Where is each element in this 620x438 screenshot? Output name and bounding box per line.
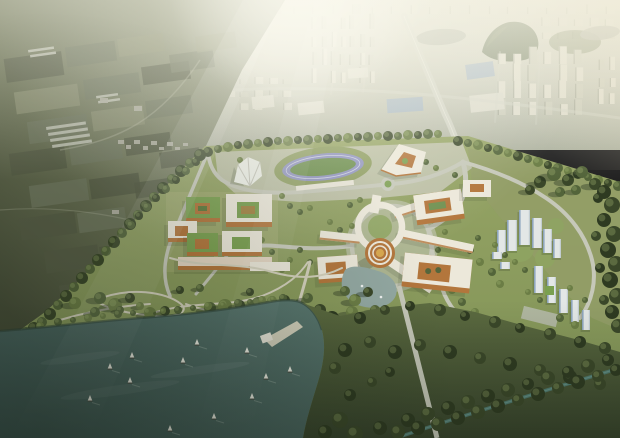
masterplan-rendering [0, 0, 620, 438]
bottom-shading [0, 300, 620, 438]
aerial-rendering-canvas [0, 0, 620, 438]
lighting-effects [0, 0, 620, 438]
